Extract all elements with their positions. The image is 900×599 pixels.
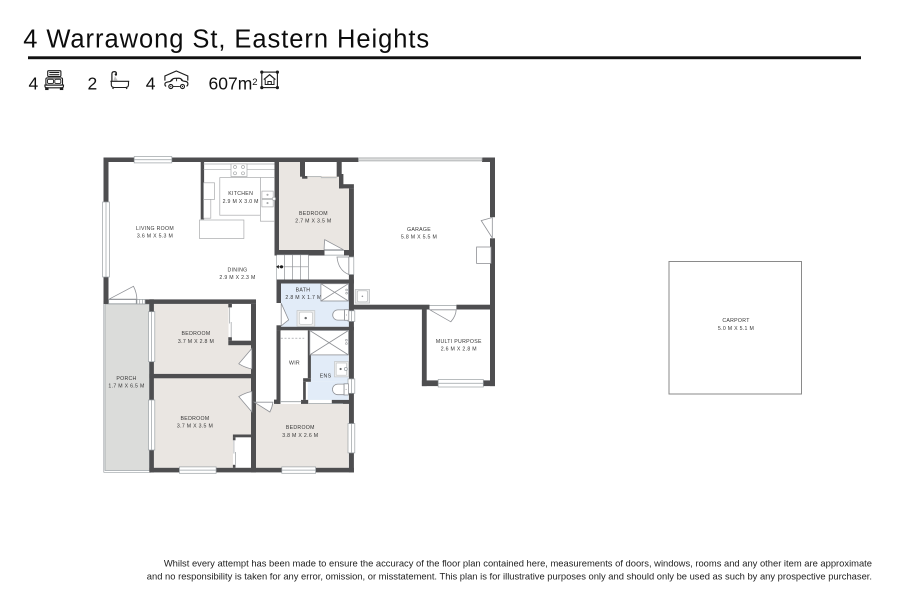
svg-text:BATH: BATH xyxy=(296,288,311,294)
svg-text:DINING: DINING xyxy=(228,267,248,273)
svg-text:2.8 M X 1.7 M: 2.8 M X 1.7 M xyxy=(285,295,321,301)
svg-text:GARAGE: GARAGE xyxy=(407,227,431,233)
svg-text:2.7 M X 3.5 M: 2.7 M X 3.5 M xyxy=(295,219,331,225)
svg-text:1.7 M X 6.5 M: 1.7 M X 6.5 M xyxy=(108,384,144,390)
svg-text:4 Warrawong St, Eastern Height: 4 Warrawong St, Eastern Heights xyxy=(23,26,430,54)
svg-text:ENS: ENS xyxy=(320,374,332,380)
svg-text:2.9 M X 2.3 M: 2.9 M X 2.3 M xyxy=(219,275,255,281)
svg-text:3.6 M X 5.3 M: 3.6 M X 5.3 M xyxy=(137,234,173,240)
svg-text:4: 4 xyxy=(146,74,156,94)
svg-text:3.7 M X 2.8 M: 3.7 M X 2.8 M xyxy=(178,339,214,345)
svg-text:Whilst every attempt has been: Whilst every attempt has been made to en… xyxy=(164,557,872,568)
svg-text:607m2: 607m2 xyxy=(209,74,258,94)
svg-text:MULTI PURPOSE: MULTI PURPOSE xyxy=(436,339,482,345)
svg-text:BEDROOM: BEDROOM xyxy=(299,211,328,217)
svg-text:PORCH: PORCH xyxy=(116,376,136,382)
svg-text:CARPORT: CARPORT xyxy=(722,318,750,324)
svg-text:BEDROOM: BEDROOM xyxy=(286,425,315,431)
svg-text:2.6 M X 2.8 M: 2.6 M X 2.8 M xyxy=(441,347,477,353)
svg-text:WIR: WIR xyxy=(289,361,300,367)
svg-text:2: 2 xyxy=(88,74,98,94)
svg-text:5.8 M X 5.5 M: 5.8 M X 5.5 M xyxy=(401,235,437,241)
svg-text:LIVING ROOM: LIVING ROOM xyxy=(136,226,174,232)
svg-text:BEDROOM: BEDROOM xyxy=(182,331,211,337)
svg-text:3.7 M X 3.5 M: 3.7 M X 3.5 M xyxy=(177,424,213,430)
svg-text:5.0 M X 5.1 M: 5.0 M X 5.1 M xyxy=(718,326,754,332)
svg-text:2.9 M X 3.0 M: 2.9 M X 3.0 M xyxy=(223,199,259,205)
svg-text:4: 4 xyxy=(29,74,39,94)
svg-text:KITCHEN: KITCHEN xyxy=(228,191,253,197)
svg-text:BEDROOM: BEDROOM xyxy=(181,416,210,422)
svg-text:and no responsibility is taken: and no responsibility is taken for any e… xyxy=(147,571,872,582)
svg-text:3.8 M X 2.6 M: 3.8 M X 2.6 M xyxy=(282,433,318,439)
